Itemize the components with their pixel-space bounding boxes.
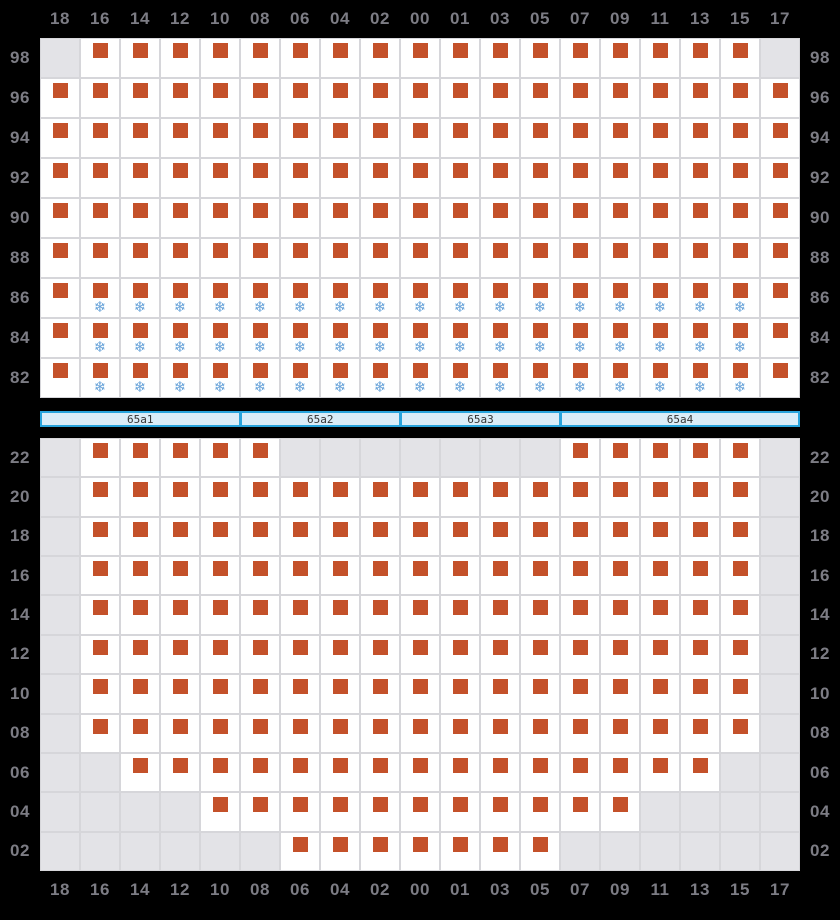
cell-02-04[interactable]	[320, 832, 360, 871]
cell-02-00[interactable]	[400, 832, 440, 871]
cell-10-14[interactable]	[120, 674, 160, 713]
cell-82-06[interactable]: ❄	[280, 358, 320, 398]
cell-16-14[interactable]	[120, 556, 160, 595]
cell-88-17[interactable]	[760, 238, 800, 278]
cell-94-12[interactable]	[160, 118, 200, 158]
cell-12-05[interactable]	[520, 635, 560, 674]
cell-04-02[interactable]	[360, 792, 400, 831]
cell-82-04[interactable]: ❄	[320, 358, 360, 398]
cell-96-10[interactable]	[200, 78, 240, 118]
cell-16-00[interactable]	[400, 556, 440, 595]
cell-96-13[interactable]	[680, 78, 720, 118]
cell-18-01[interactable]	[440, 517, 480, 556]
cell-82-10[interactable]: ❄	[200, 358, 240, 398]
cell-98-13[interactable]	[680, 38, 720, 78]
cell-08-09[interactable]	[600, 714, 640, 753]
cell-22-14[interactable]	[120, 438, 160, 477]
cell-18-07[interactable]	[560, 517, 600, 556]
cell-06-02[interactable]	[360, 753, 400, 792]
cell-06-05[interactable]	[520, 753, 560, 792]
cell-94-00[interactable]	[400, 118, 440, 158]
cell-04-10[interactable]	[200, 792, 240, 831]
cell-06-06[interactable]	[280, 753, 320, 792]
cell-20-11[interactable]	[640, 477, 680, 516]
cell-22-12[interactable]	[160, 438, 200, 477]
cell-08-10[interactable]	[200, 714, 240, 753]
cell-86-08[interactable]: ❄	[240, 278, 280, 318]
cell-20-14[interactable]	[120, 477, 160, 516]
cell-96-07[interactable]	[560, 78, 600, 118]
cell-86-14[interactable]: ❄	[120, 278, 160, 318]
cell-18-03[interactable]	[480, 517, 520, 556]
section-segment-65a3[interactable]: 65a3	[402, 413, 562, 425]
cell-88-14[interactable]	[120, 238, 160, 278]
cell-82-16[interactable]: ❄	[80, 358, 120, 398]
cell-96-02[interactable]	[360, 78, 400, 118]
cell-92-12[interactable]	[160, 158, 200, 198]
cell-22-13[interactable]	[680, 438, 720, 477]
cell-90-03[interactable]	[480, 198, 520, 238]
cell-86-03[interactable]: ❄	[480, 278, 520, 318]
cell-92-01[interactable]	[440, 158, 480, 198]
cell-98-15[interactable]	[720, 38, 760, 78]
cell-14-04[interactable]	[320, 595, 360, 634]
cell-82-01[interactable]: ❄	[440, 358, 480, 398]
cell-10-07[interactable]	[560, 674, 600, 713]
cell-18-09[interactable]	[600, 517, 640, 556]
cell-94-03[interactable]	[480, 118, 520, 158]
cell-92-10[interactable]	[200, 158, 240, 198]
cell-98-00[interactable]	[400, 38, 440, 78]
cell-84-08[interactable]: ❄	[240, 318, 280, 358]
cell-02-06[interactable]	[280, 832, 320, 871]
cell-92-00[interactable]	[400, 158, 440, 198]
cell-86-06[interactable]: ❄	[280, 278, 320, 318]
cell-84-16[interactable]: ❄	[80, 318, 120, 358]
cell-10-16[interactable]	[80, 674, 120, 713]
cell-12-11[interactable]	[640, 635, 680, 674]
cell-14-14[interactable]	[120, 595, 160, 634]
cell-16-10[interactable]	[200, 556, 240, 595]
cell-86-07[interactable]: ❄	[560, 278, 600, 318]
cell-02-03[interactable]	[480, 832, 520, 871]
cell-96-16[interactable]	[80, 78, 120, 118]
cell-92-17[interactable]	[760, 158, 800, 198]
cell-22-08[interactable]	[240, 438, 280, 477]
cell-86-11[interactable]: ❄	[640, 278, 680, 318]
cell-20-07[interactable]	[560, 477, 600, 516]
cell-90-17[interactable]	[760, 198, 800, 238]
cell-84-12[interactable]: ❄	[160, 318, 200, 358]
cell-98-16[interactable]	[80, 38, 120, 78]
cell-98-04[interactable]	[320, 38, 360, 78]
cell-06-00[interactable]	[400, 753, 440, 792]
cell-02-02[interactable]	[360, 832, 400, 871]
cell-90-18[interactable]	[40, 198, 80, 238]
cell-88-03[interactable]	[480, 238, 520, 278]
cell-82-05[interactable]: ❄	[520, 358, 560, 398]
cell-14-06[interactable]	[280, 595, 320, 634]
cell-18-14[interactable]	[120, 517, 160, 556]
cell-88-18[interactable]	[40, 238, 80, 278]
cell-90-15[interactable]	[720, 198, 760, 238]
cell-08-07[interactable]	[560, 714, 600, 753]
cell-96-14[interactable]	[120, 78, 160, 118]
cell-14-11[interactable]	[640, 595, 680, 634]
cell-10-10[interactable]	[200, 674, 240, 713]
cell-96-08[interactable]	[240, 78, 280, 118]
cell-14-12[interactable]	[160, 595, 200, 634]
cell-98-01[interactable]	[440, 38, 480, 78]
cell-98-08[interactable]	[240, 38, 280, 78]
cell-84-13[interactable]: ❄	[680, 318, 720, 358]
cell-10-02[interactable]	[360, 674, 400, 713]
cell-86-17[interactable]	[760, 278, 800, 318]
cell-06-13[interactable]	[680, 753, 720, 792]
cell-82-00[interactable]: ❄	[400, 358, 440, 398]
cell-94-04[interactable]	[320, 118, 360, 158]
cell-12-08[interactable]	[240, 635, 280, 674]
cell-14-07[interactable]	[560, 595, 600, 634]
cell-20-16[interactable]	[80, 477, 120, 516]
cell-08-02[interactable]	[360, 714, 400, 753]
cell-86-02[interactable]: ❄	[360, 278, 400, 318]
cell-82-14[interactable]: ❄	[120, 358, 160, 398]
cell-08-14[interactable]	[120, 714, 160, 753]
cell-84-10[interactable]: ❄	[200, 318, 240, 358]
section-segment-65a2[interactable]: 65a2	[242, 413, 402, 425]
cell-92-04[interactable]	[320, 158, 360, 198]
cell-86-18[interactable]	[40, 278, 80, 318]
cell-14-08[interactable]	[240, 595, 280, 634]
cell-20-13[interactable]	[680, 477, 720, 516]
cell-92-03[interactable]	[480, 158, 520, 198]
cell-14-09[interactable]	[600, 595, 640, 634]
cell-84-15[interactable]: ❄	[720, 318, 760, 358]
cell-10-01[interactable]	[440, 674, 480, 713]
cell-12-07[interactable]	[560, 635, 600, 674]
cell-82-08[interactable]: ❄	[240, 358, 280, 398]
cell-86-09[interactable]: ❄	[600, 278, 640, 318]
cell-94-06[interactable]	[280, 118, 320, 158]
cell-22-15[interactable]	[720, 438, 760, 477]
cell-04-06[interactable]	[280, 792, 320, 831]
cell-16-05[interactable]	[520, 556, 560, 595]
cell-08-15[interactable]	[720, 714, 760, 753]
cell-22-07[interactable]	[560, 438, 600, 477]
cell-94-05[interactable]	[520, 118, 560, 158]
cell-16-02[interactable]	[360, 556, 400, 595]
cell-98-03[interactable]	[480, 38, 520, 78]
cell-96-17[interactable]	[760, 78, 800, 118]
cell-84-14[interactable]: ❄	[120, 318, 160, 358]
cell-04-04[interactable]	[320, 792, 360, 831]
cell-10-00[interactable]	[400, 674, 440, 713]
cell-84-06[interactable]: ❄	[280, 318, 320, 358]
cell-94-08[interactable]	[240, 118, 280, 158]
cell-06-09[interactable]	[600, 753, 640, 792]
cell-12-00[interactable]	[400, 635, 440, 674]
cell-06-11[interactable]	[640, 753, 680, 792]
cell-12-01[interactable]	[440, 635, 480, 674]
cell-12-13[interactable]	[680, 635, 720, 674]
cell-04-08[interactable]	[240, 792, 280, 831]
cell-90-13[interactable]	[680, 198, 720, 238]
cell-98-10[interactable]	[200, 38, 240, 78]
cell-10-15[interactable]	[720, 674, 760, 713]
section-segment-65a1[interactable]: 65a1	[42, 413, 242, 425]
cell-20-15[interactable]	[720, 477, 760, 516]
cell-88-06[interactable]	[280, 238, 320, 278]
section-segment-65a4[interactable]: 65a4	[562, 413, 798, 425]
cell-22-11[interactable]	[640, 438, 680, 477]
cell-90-09[interactable]	[600, 198, 640, 238]
cell-04-01[interactable]	[440, 792, 480, 831]
cell-92-18[interactable]	[40, 158, 80, 198]
cell-04-07[interactable]	[560, 792, 600, 831]
cell-94-15[interactable]	[720, 118, 760, 158]
cell-84-11[interactable]: ❄	[640, 318, 680, 358]
cell-94-09[interactable]	[600, 118, 640, 158]
cell-08-16[interactable]	[80, 714, 120, 753]
cell-12-06[interactable]	[280, 635, 320, 674]
cell-98-12[interactable]	[160, 38, 200, 78]
cell-12-14[interactable]	[120, 635, 160, 674]
cell-92-05[interactable]	[520, 158, 560, 198]
cell-90-05[interactable]	[520, 198, 560, 238]
cell-20-00[interactable]	[400, 477, 440, 516]
cell-20-02[interactable]	[360, 477, 400, 516]
cell-96-12[interactable]	[160, 78, 200, 118]
cell-84-05[interactable]: ❄	[520, 318, 560, 358]
cell-90-00[interactable]	[400, 198, 440, 238]
cell-92-15[interactable]	[720, 158, 760, 198]
cell-90-08[interactable]	[240, 198, 280, 238]
cell-84-04[interactable]: ❄	[320, 318, 360, 358]
cell-86-15[interactable]: ❄	[720, 278, 760, 318]
cell-22-09[interactable]	[600, 438, 640, 477]
cell-84-01[interactable]: ❄	[440, 318, 480, 358]
cell-16-03[interactable]	[480, 556, 520, 595]
cell-92-14[interactable]	[120, 158, 160, 198]
cell-88-16[interactable]	[80, 238, 120, 278]
cell-96-09[interactable]	[600, 78, 640, 118]
cell-12-10[interactable]	[200, 635, 240, 674]
cell-84-17[interactable]	[760, 318, 800, 358]
cell-86-01[interactable]: ❄	[440, 278, 480, 318]
cell-94-13[interactable]	[680, 118, 720, 158]
cell-94-18[interactable]	[40, 118, 80, 158]
cell-92-11[interactable]	[640, 158, 680, 198]
cell-14-03[interactable]	[480, 595, 520, 634]
cell-84-02[interactable]: ❄	[360, 318, 400, 358]
cell-96-03[interactable]	[480, 78, 520, 118]
cell-88-07[interactable]	[560, 238, 600, 278]
cell-96-05[interactable]	[520, 78, 560, 118]
cell-12-15[interactable]	[720, 635, 760, 674]
cell-90-16[interactable]	[80, 198, 120, 238]
cell-98-11[interactable]	[640, 38, 680, 78]
cell-08-00[interactable]	[400, 714, 440, 753]
cell-08-05[interactable]	[520, 714, 560, 753]
cell-08-04[interactable]	[320, 714, 360, 753]
cell-16-13[interactable]	[680, 556, 720, 595]
cell-18-08[interactable]	[240, 517, 280, 556]
cell-98-09[interactable]	[600, 38, 640, 78]
cell-22-10[interactable]	[200, 438, 240, 477]
cell-06-03[interactable]	[480, 753, 520, 792]
cell-16-04[interactable]	[320, 556, 360, 595]
cell-88-09[interactable]	[600, 238, 640, 278]
cell-14-01[interactable]	[440, 595, 480, 634]
cell-02-05[interactable]	[520, 832, 560, 871]
cell-10-13[interactable]	[680, 674, 720, 713]
cell-88-00[interactable]	[400, 238, 440, 278]
cell-12-04[interactable]	[320, 635, 360, 674]
cell-16-01[interactable]	[440, 556, 480, 595]
cell-96-06[interactable]	[280, 78, 320, 118]
cell-90-12[interactable]	[160, 198, 200, 238]
cell-10-06[interactable]	[280, 674, 320, 713]
cell-90-04[interactable]	[320, 198, 360, 238]
cell-16-12[interactable]	[160, 556, 200, 595]
cell-20-05[interactable]	[520, 477, 560, 516]
cell-08-06[interactable]	[280, 714, 320, 753]
cell-18-12[interactable]	[160, 517, 200, 556]
cell-20-09[interactable]	[600, 477, 640, 516]
cell-94-17[interactable]	[760, 118, 800, 158]
cell-16-09[interactable]	[600, 556, 640, 595]
cell-88-05[interactable]	[520, 238, 560, 278]
cell-90-10[interactable]	[200, 198, 240, 238]
cell-20-06[interactable]	[280, 477, 320, 516]
cell-06-10[interactable]	[200, 753, 240, 792]
cell-06-14[interactable]	[120, 753, 160, 792]
cell-18-13[interactable]	[680, 517, 720, 556]
cell-88-04[interactable]	[320, 238, 360, 278]
cell-86-16[interactable]: ❄	[80, 278, 120, 318]
cell-94-11[interactable]	[640, 118, 680, 158]
cell-82-12[interactable]: ❄	[160, 358, 200, 398]
cell-88-01[interactable]	[440, 238, 480, 278]
cell-94-01[interactable]	[440, 118, 480, 158]
cell-10-09[interactable]	[600, 674, 640, 713]
cell-14-00[interactable]	[400, 595, 440, 634]
cell-86-04[interactable]: ❄	[320, 278, 360, 318]
cell-82-15[interactable]: ❄	[720, 358, 760, 398]
cell-92-16[interactable]	[80, 158, 120, 198]
cell-92-13[interactable]	[680, 158, 720, 198]
cell-14-15[interactable]	[720, 595, 760, 634]
cell-94-07[interactable]	[560, 118, 600, 158]
cell-98-14[interactable]	[120, 38, 160, 78]
cell-84-18[interactable]	[40, 318, 80, 358]
cell-18-06[interactable]	[280, 517, 320, 556]
cell-96-00[interactable]	[400, 78, 440, 118]
cell-12-02[interactable]	[360, 635, 400, 674]
cell-16-07[interactable]	[560, 556, 600, 595]
cell-90-02[interactable]	[360, 198, 400, 238]
cell-84-07[interactable]: ❄	[560, 318, 600, 358]
cell-90-01[interactable]	[440, 198, 480, 238]
cell-18-16[interactable]	[80, 517, 120, 556]
cell-84-00[interactable]: ❄	[400, 318, 440, 358]
cell-88-08[interactable]	[240, 238, 280, 278]
cell-18-00[interactable]	[400, 517, 440, 556]
cell-86-05[interactable]: ❄	[520, 278, 560, 318]
cell-16-06[interactable]	[280, 556, 320, 595]
cell-16-08[interactable]	[240, 556, 280, 595]
cell-88-13[interactable]	[680, 238, 720, 278]
cell-82-18[interactable]	[40, 358, 80, 398]
cell-92-08[interactable]	[240, 158, 280, 198]
cell-10-08[interactable]	[240, 674, 280, 713]
cell-06-01[interactable]	[440, 753, 480, 792]
cell-98-07[interactable]	[560, 38, 600, 78]
cell-96-15[interactable]	[720, 78, 760, 118]
cell-08-08[interactable]	[240, 714, 280, 753]
cell-86-00[interactable]: ❄	[400, 278, 440, 318]
cell-20-08[interactable]	[240, 477, 280, 516]
cell-98-05[interactable]	[520, 38, 560, 78]
cell-86-13[interactable]: ❄	[680, 278, 720, 318]
cell-12-16[interactable]	[80, 635, 120, 674]
cell-18-02[interactable]	[360, 517, 400, 556]
cell-18-04[interactable]	[320, 517, 360, 556]
cell-14-10[interactable]	[200, 595, 240, 634]
cell-12-09[interactable]	[600, 635, 640, 674]
cell-10-05[interactable]	[520, 674, 560, 713]
cell-14-16[interactable]	[80, 595, 120, 634]
cell-84-03[interactable]: ❄	[480, 318, 520, 358]
cell-90-14[interactable]	[120, 198, 160, 238]
cell-18-11[interactable]	[640, 517, 680, 556]
cell-20-12[interactable]	[160, 477, 200, 516]
cell-16-11[interactable]	[640, 556, 680, 595]
cell-96-11[interactable]	[640, 78, 680, 118]
cell-14-05[interactable]	[520, 595, 560, 634]
cell-92-02[interactable]	[360, 158, 400, 198]
cell-94-16[interactable]	[80, 118, 120, 158]
cell-88-15[interactable]	[720, 238, 760, 278]
cell-90-07[interactable]	[560, 198, 600, 238]
cell-20-04[interactable]	[320, 477, 360, 516]
cell-04-03[interactable]	[480, 792, 520, 831]
cell-08-01[interactable]	[440, 714, 480, 753]
cell-16-16[interactable]	[80, 556, 120, 595]
cell-86-10[interactable]: ❄	[200, 278, 240, 318]
cell-18-15[interactable]	[720, 517, 760, 556]
cell-82-17[interactable]	[760, 358, 800, 398]
cell-96-01[interactable]	[440, 78, 480, 118]
cell-92-09[interactable]	[600, 158, 640, 198]
cell-88-12[interactable]	[160, 238, 200, 278]
cell-04-00[interactable]	[400, 792, 440, 831]
cell-84-09[interactable]: ❄	[600, 318, 640, 358]
cell-08-11[interactable]	[640, 714, 680, 753]
cell-92-06[interactable]	[280, 158, 320, 198]
cell-94-14[interactable]	[120, 118, 160, 158]
cell-14-02[interactable]	[360, 595, 400, 634]
cell-96-18[interactable]	[40, 78, 80, 118]
cell-82-13[interactable]: ❄	[680, 358, 720, 398]
cell-08-12[interactable]	[160, 714, 200, 753]
cell-04-05[interactable]	[520, 792, 560, 831]
cell-96-04[interactable]	[320, 78, 360, 118]
cell-12-12[interactable]	[160, 635, 200, 674]
cell-04-09[interactable]	[600, 792, 640, 831]
cell-06-08[interactable]	[240, 753, 280, 792]
